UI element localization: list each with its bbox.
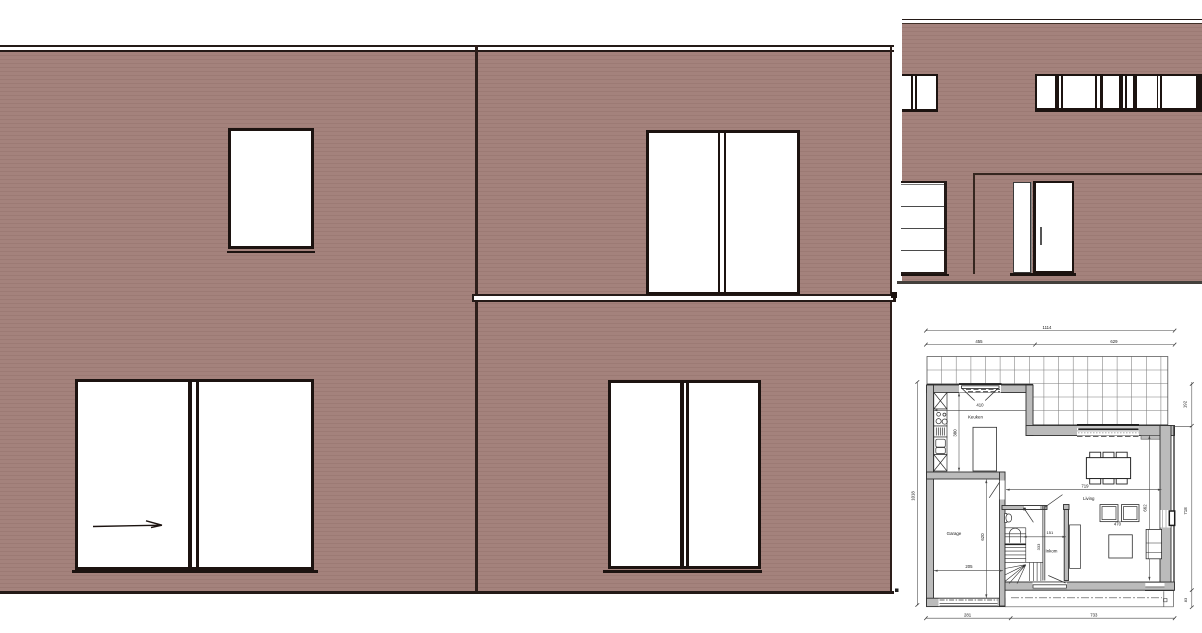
svg-text:1114: 1114 [1043,325,1053,330]
svg-text:620: 620 [980,533,985,541]
svg-text:380: 380 [953,429,958,437]
svg-text:733: 733 [1090,613,1098,618]
svg-text:205: 205 [965,564,973,569]
svg-text:Living: Living [1083,496,1095,501]
svg-text:629: 629 [1110,339,1118,344]
svg-text:192: 192 [1183,400,1188,408]
svg-text:333: 333 [1036,543,1041,550]
svg-text:151: 151 [1047,530,1054,535]
svg-text:455: 455 [975,339,983,344]
svg-text:470: 470 [1114,521,1122,526]
svg-text:Keuken: Keuken [968,415,983,420]
svg-text:1018: 1018 [911,491,916,501]
svg-text:719: 719 [1081,484,1089,489]
svg-text:410: 410 [976,403,984,408]
svg-text:718: 718 [1183,507,1188,515]
svg-text:281: 281 [964,613,972,618]
svg-text:Inkom: Inkom [1046,549,1058,554]
svg-text:Garage: Garage [947,531,962,536]
svg-text:662: 662 [1143,504,1148,512]
svg-text:83: 83 [1183,597,1188,602]
